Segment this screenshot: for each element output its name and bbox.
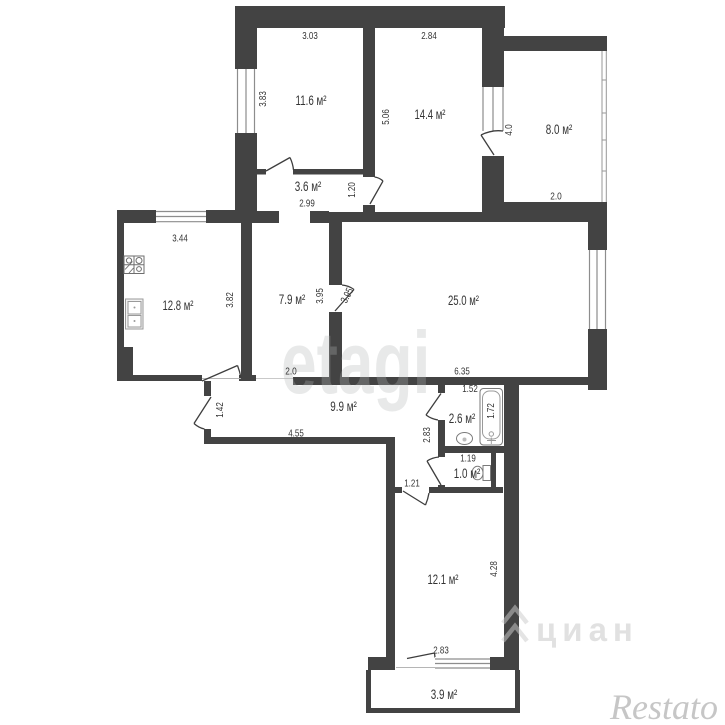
svg-text:3.82: 3.82 [224, 292, 236, 308]
svg-text:14.4 м²: 14.4 м² [415, 107, 446, 122]
svg-text:3.95: 3.95 [314, 288, 326, 304]
svg-text:1.52: 1.52 [462, 383, 478, 395]
svg-text:7.9 м²: 7.9 м² [279, 292, 306, 307]
svg-text:3.6 м²: 3.6 м² [295, 179, 322, 194]
svg-text:3.03: 3.03 [302, 30, 318, 42]
svg-text:12.1 м²: 12.1 м² [428, 572, 459, 587]
svg-text:2.83: 2.83 [433, 645, 449, 657]
svg-text:11.6 м²: 11.6 м² [296, 93, 327, 108]
svg-text:2.99: 2.99 [299, 198, 315, 210]
svg-text:8.0 м²: 8.0 м² [546, 122, 573, 137]
svg-text:1.20: 1.20 [346, 182, 358, 198]
svg-text:1.72: 1.72 [485, 403, 497, 419]
svg-text:Restato: Restato [609, 687, 718, 725]
svg-text:2.0: 2.0 [285, 366, 297, 378]
svg-text:2.0: 2.0 [550, 191, 562, 203]
svg-text:3.44: 3.44 [172, 233, 188, 245]
svg-text:etagi: etagi [281, 314, 430, 412]
svg-text:1.42: 1.42 [214, 402, 226, 418]
svg-text:3.9 м²: 3.9 м² [431, 687, 458, 702]
svg-text:2.84: 2.84 [421, 30, 437, 42]
svg-text:5.06: 5.06 [380, 109, 392, 125]
svg-text:циан: циан [536, 611, 639, 648]
svg-text:9.9 м²: 9.9 м² [330, 399, 357, 414]
svg-text:25.0 м²: 25.0 м² [448, 293, 479, 308]
svg-text:2.83: 2.83 [421, 427, 433, 443]
svg-text:1.0 м²: 1.0 м² [454, 466, 481, 481]
svg-text:6.35: 6.35 [454, 366, 470, 378]
svg-text:4.0: 4.0 [503, 124, 515, 136]
svg-text:2.6 м²: 2.6 м² [449, 411, 476, 426]
svg-text:4.55: 4.55 [288, 428, 304, 440]
svg-text:1.19: 1.19 [460, 453, 476, 465]
svg-text:4.28: 4.28 [488, 561, 500, 577]
svg-text:12.8 м²: 12.8 м² [163, 298, 194, 313]
svg-text:1.21: 1.21 [404, 478, 420, 490]
svg-text:3.83: 3.83 [257, 91, 269, 107]
